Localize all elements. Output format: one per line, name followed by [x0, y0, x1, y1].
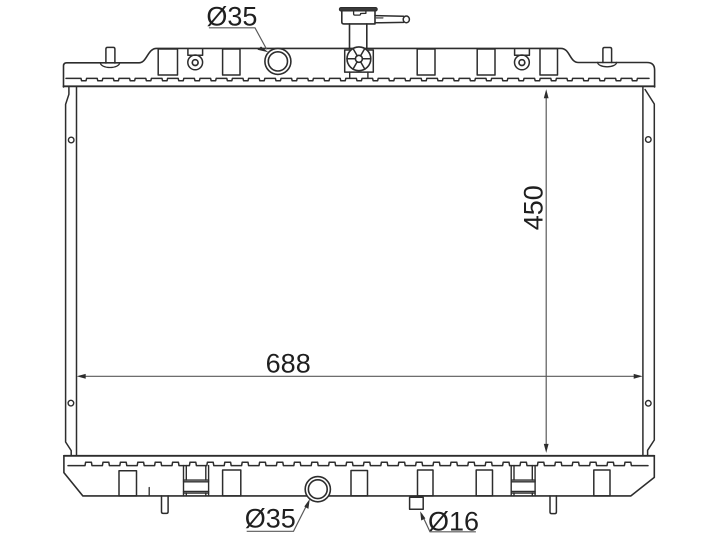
svg-text:688: 688: [266, 348, 311, 378]
svg-text:Ø35: Ø35: [245, 504, 296, 534]
svg-text:Ø35: Ø35: [206, 2, 257, 32]
svg-text:450: 450: [519, 185, 549, 230]
